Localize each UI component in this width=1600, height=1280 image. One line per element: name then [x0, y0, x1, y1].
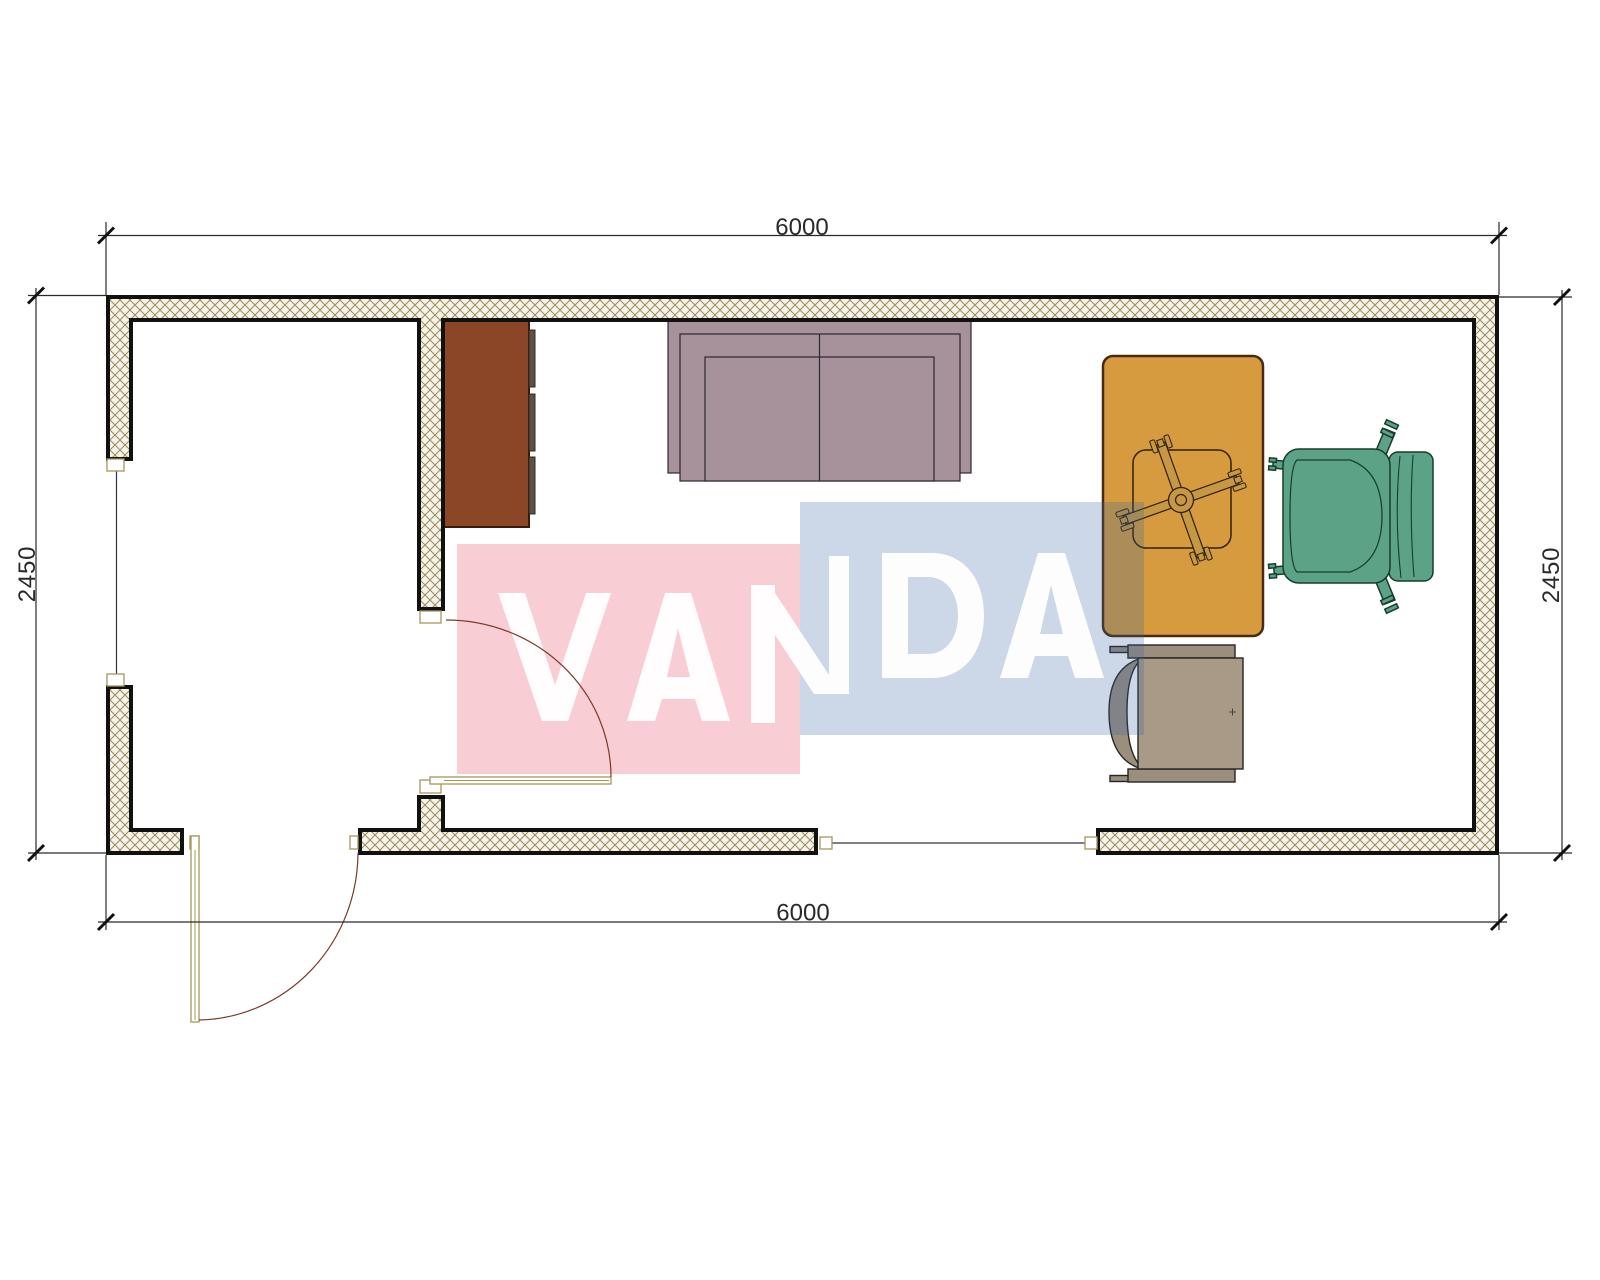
svg-text:6000: 6000: [775, 214, 828, 241]
svg-text:6000: 6000: [776, 900, 829, 927]
svg-text:2450: 2450: [1538, 547, 1565, 604]
svg-text:2450: 2450: [14, 546, 41, 603]
